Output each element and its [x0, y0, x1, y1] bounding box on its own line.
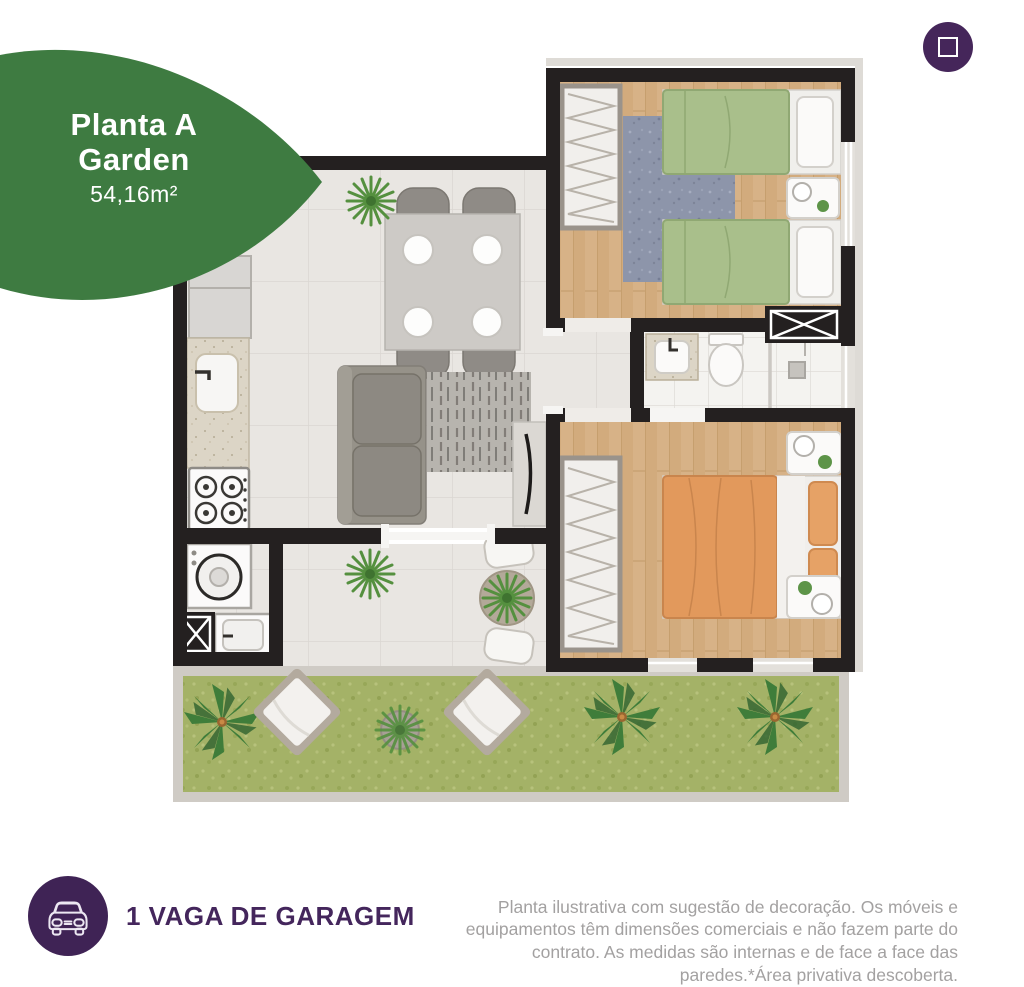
terrace-set — [480, 531, 535, 665]
plant — [798, 581, 812, 595]
footer: 1 VAGA DE GARAGEM Planta ilustrativa com… — [0, 868, 1024, 969]
wardrobe — [562, 86, 620, 228]
duct-shaft — [765, 306, 843, 343]
garage-label: 1 VAGA DE GARAGEM — [126, 901, 415, 932]
laundry-tub — [215, 614, 271, 656]
plant — [346, 550, 394, 598]
lamp — [812, 594, 832, 614]
toilet — [709, 334, 743, 386]
garden-side-table — [376, 706, 424, 754]
page: Planta A Garden 54,16m² 1 VAGA DE GARAGE… — [0, 0, 1024, 969]
plant — [347, 177, 395, 225]
plant — [817, 200, 829, 212]
twin-bed — [663, 220, 841, 304]
disclaimer-text: Planta ilustrativa com sugestão de decor… — [418, 896, 958, 987]
sofa — [338, 366, 426, 524]
fullscreen-button[interactable] — [923, 22, 973, 72]
twin-bed — [663, 90, 841, 174]
stove — [189, 468, 249, 530]
lamp — [793, 183, 811, 201]
plan-title-line2: Garden — [28, 143, 240, 178]
dining-set — [385, 188, 520, 378]
plant — [818, 455, 832, 469]
hall — [546, 332, 644, 408]
nightstand — [787, 432, 841, 474]
lamp — [794, 436, 814, 456]
nightstand — [787, 178, 839, 218]
plan-title-line1: Planta A — [28, 108, 240, 143]
kitchen-sink — [196, 354, 238, 412]
plan-badge: Planta A Garden 54,16m² — [0, 30, 340, 320]
car-icon — [28, 876, 108, 956]
nightstand — [787, 576, 841, 618]
tv-console — [513, 422, 546, 526]
bathroom-vanity — [646, 334, 698, 380]
terrace-chair — [483, 627, 535, 665]
wardrobe — [562, 458, 620, 650]
garden — [173, 666, 849, 802]
kitchen-counter — [187, 338, 249, 468]
garage-info: 1 VAGA DE GARAGEM — [28, 876, 415, 956]
washing-machine — [187, 544, 251, 608]
plan-area: 54,16m² — [28, 181, 240, 208]
